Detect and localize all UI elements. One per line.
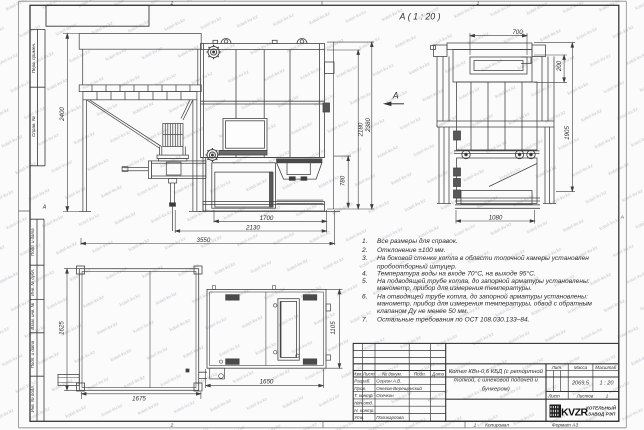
svg-text:На боковой стенке котла в обла: На боковой стенке котла в области топочн… xyxy=(377,254,589,262)
svg-text:Осечкин: Осечкин xyxy=(376,393,394,398)
svg-text:Отклонение ±100 мм.: Отклонение ±100 мм. xyxy=(377,247,446,254)
svg-text:Перв. примен.: Перв. примен. xyxy=(31,43,36,74)
svg-text:Подп.: Подп. xyxy=(414,371,426,376)
svg-text:Масса: Масса xyxy=(574,365,588,370)
svg-text:1625: 1625 xyxy=(59,321,66,335)
svg-text:1 : 20: 1 : 20 xyxy=(600,381,615,387)
svg-text:1650: 1650 xyxy=(260,378,274,385)
svg-text:Копировал: Копировал xyxy=(485,422,509,428)
svg-text:1.: 1. xyxy=(362,238,368,245)
svg-text:На подводящей трубе котла, до: На подводящей трубе котла, до запорной а… xyxy=(377,277,590,285)
svg-text:Температура воды на входе 70°С: Температура воды на входе 70°С, на выход… xyxy=(377,270,536,278)
svg-text:Пров.: Пров. xyxy=(354,386,366,391)
svg-text:4.: 4. xyxy=(362,271,368,278)
svg-text:Дата: Дата xyxy=(431,371,444,376)
svg-text:1905: 1905 xyxy=(564,126,571,140)
svg-text:пробоотборный штуцер.: пробоотборный штуцер. xyxy=(377,263,457,271)
svg-text:КОТЕЛЬНЫЙ: КОТЕЛЬНЫЙ xyxy=(586,404,617,411)
svg-text:клапаном Ду не менее 50 мм.: клапаном Ду не менее 50 мм. xyxy=(377,308,469,315)
svg-text:Листов: Листов xyxy=(576,394,594,399)
svg-text:2130: 2130 xyxy=(245,225,260,232)
svg-text:манометр, прибор для измерения: манометр, прибор для измерения температу… xyxy=(377,300,592,308)
svg-text:Масштаб: Масштаб xyxy=(595,365,616,370)
svg-text:5.: 5. xyxy=(362,278,368,285)
svg-text:Инв. № дубл.: Инв. № дубл. xyxy=(30,269,35,296)
svg-text:Н. контр.: Н. контр. xyxy=(354,408,374,413)
svg-text:1080: 1080 xyxy=(489,215,503,222)
svg-text:Подп. и дата: Подп. и дата xyxy=(30,228,35,256)
svg-text:Котел КВн-0,6 КБД (с ретортной: Котел КВн-0,6 КБД (с ретортной xyxy=(449,368,544,375)
svg-text:1675: 1675 xyxy=(132,396,146,403)
svg-text:Лит.: Лит. xyxy=(551,365,563,370)
svg-text:Инв. № подл.: Инв. № подл. xyxy=(30,385,35,412)
svg-text:Утв.: Утв. xyxy=(354,415,364,420)
svg-text:Все размеры для справок.: Все размеры для справок. xyxy=(377,237,458,245)
svg-text:1: 1 xyxy=(477,1,480,7)
svg-text:топкой, с шнековой подачей и: топкой, с шнековой подачей и xyxy=(454,377,539,384)
svg-text:1: 1 xyxy=(474,422,477,428)
svg-text:2: 2 xyxy=(170,1,174,7)
svg-text:Подп. и дата: Подп. и дата xyxy=(30,340,35,368)
svg-text:Остальные требования по ОСТ 10: Остальные требования по ОСТ 108.030.133–… xyxy=(377,315,530,323)
svg-text:7.: 7. xyxy=(362,316,368,323)
svg-text:6.: 6. xyxy=(362,294,368,301)
svg-text:1105: 1105 xyxy=(330,321,337,335)
svg-text:780: 780 xyxy=(340,175,347,186)
svg-text:А ( 1 : 20 ): А ( 1 : 20 ) xyxy=(398,12,440,22)
svg-text:Справ. №: Справ. № xyxy=(31,116,36,137)
svg-text:2380: 2380 xyxy=(365,118,372,133)
svg-text:2: 2 xyxy=(170,422,174,428)
svg-text:Взам. инв. №: Взам. инв. № xyxy=(30,302,35,329)
svg-text:Сергин А.В.: Сергин А.В. xyxy=(376,379,401,384)
svg-text:KVZR: KVZR xyxy=(561,407,589,419)
svg-text:1700: 1700 xyxy=(260,215,274,222)
svg-text:2400: 2400 xyxy=(59,107,66,122)
svg-text:Поликарпова: Поликарпова xyxy=(376,415,404,420)
svg-text:ЗАВОД РЭП: ЗАВОД РЭП xyxy=(588,412,616,417)
svg-text:Формат А3: Формат А3 xyxy=(552,422,579,428)
svg-text:Т. контр.: Т. контр. xyxy=(354,393,373,398)
svg-text:3550: 3550 xyxy=(197,237,211,244)
svg-text:А: А xyxy=(392,91,399,101)
svg-text:2.: 2. xyxy=(361,247,368,254)
svg-text:А: А xyxy=(620,215,624,220)
svg-text:Лист: Лист xyxy=(362,371,375,376)
svg-text:манометр, прибор для измерения: манометр, прибор для измерения температу… xyxy=(377,284,532,292)
svg-text:Изм.: Изм. xyxy=(353,371,363,376)
svg-text:На отводящей трубе котла, до з: На отводящей трубе котла, до запорной ар… xyxy=(377,293,588,301)
svg-text:700: 700 xyxy=(512,29,523,36)
svg-text:200: 200 xyxy=(556,60,563,72)
svg-text:А: А xyxy=(42,205,47,211)
svg-text:2069,5: 2069,5 xyxy=(571,381,590,387)
svg-text:Лист: Лист xyxy=(547,394,560,399)
svg-text:Нач.отд.: Нач.отд. xyxy=(354,401,373,406)
svg-text:3.: 3. xyxy=(362,255,368,262)
svg-text:Онегов-Верещинский: Онегов-Верещинский xyxy=(376,385,422,391)
svg-text:бункером): бункером) xyxy=(482,386,510,392)
svg-text:Разраб.: Разраб. xyxy=(354,379,370,384)
svg-text:№ докум.: № докум. xyxy=(382,371,402,376)
svg-text:2180: 2180 xyxy=(357,122,364,137)
